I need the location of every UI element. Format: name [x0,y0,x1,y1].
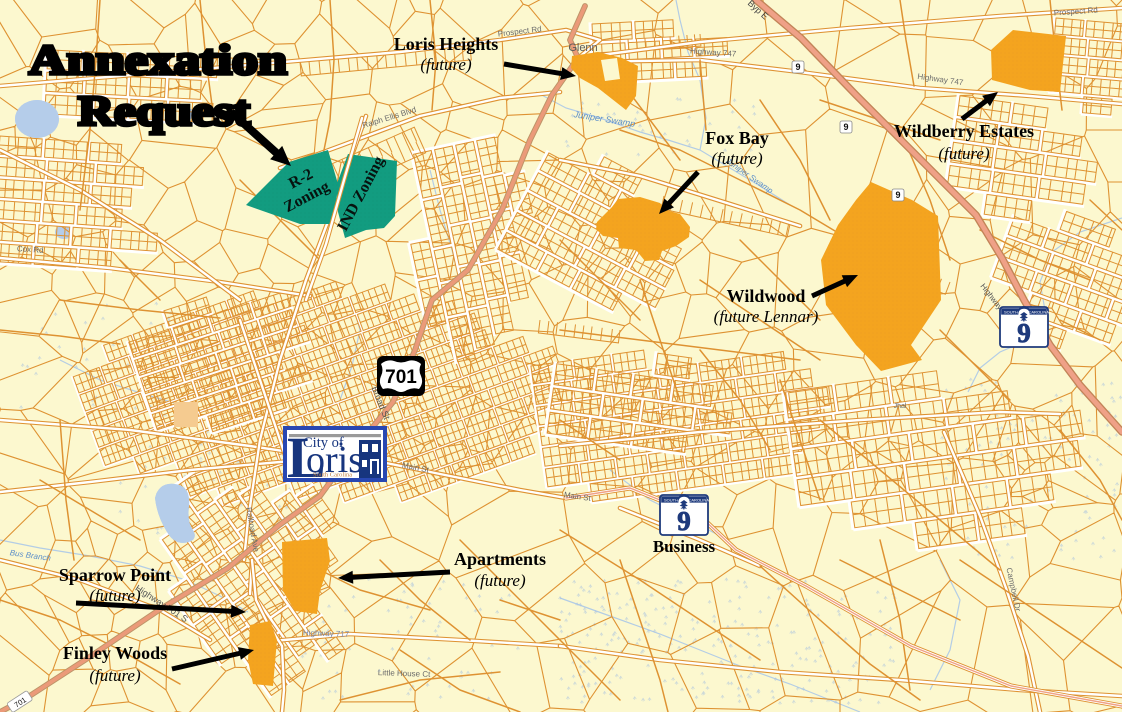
svg-text:9: 9 [843,122,848,132]
svg-text:(future Lennar): (future Lennar) [714,307,819,326]
svg-text:(future): (future) [420,55,472,74]
svg-text:(future): (future) [474,571,526,590]
svg-text:Finley Woods: Finley Woods [63,643,167,663]
svg-text:Request: Request [78,89,250,135]
svg-text:Fox Bay: Fox Bay [705,128,769,148]
svg-text:Glenn: Glenn [568,42,597,54]
svg-text:9: 9 [795,62,800,72]
svg-text:843-756-4004: 843-756-4004 [313,477,339,482]
svg-text:9: 9 [1017,318,1031,348]
svg-text:(future): (future) [711,149,763,168]
svg-text:Apartments: Apartments [454,549,546,569]
svg-text:CAROLINA: CAROLINA [1029,309,1050,314]
svg-text:Jhal: Jhal [894,403,907,410]
svg-text:Wildberry Estates: Wildberry Estates [894,121,1034,141]
svg-text:Highway 717: Highway 717 [303,628,350,639]
svg-text:9: 9 [677,506,691,536]
svg-text:Sparrow Point: Sparrow Point [59,565,171,585]
svg-text:SOUTH: SOUTH [1004,309,1018,314]
svg-text:(future): (future) [938,144,990,163]
svg-text:Annexation: Annexation [29,38,287,84]
svg-text:(future): (future) [89,586,141,605]
svg-text:Business: Business [653,537,716,556]
svg-text:CAROLINA: CAROLINA [689,497,710,502]
svg-text:Cox Rd: Cox Rd [17,244,44,255]
svg-text:701: 701 [385,367,417,388]
svg-text:(future): (future) [89,666,141,685]
svg-text:Loris Heights: Loris Heights [394,34,499,54]
svg-text:Little House Ct: Little House Ct [378,668,432,679]
svg-text:SOUTH: SOUTH [664,497,678,502]
svg-text:9: 9 [895,190,900,200]
svg-text:Wildwood: Wildwood [727,286,806,306]
